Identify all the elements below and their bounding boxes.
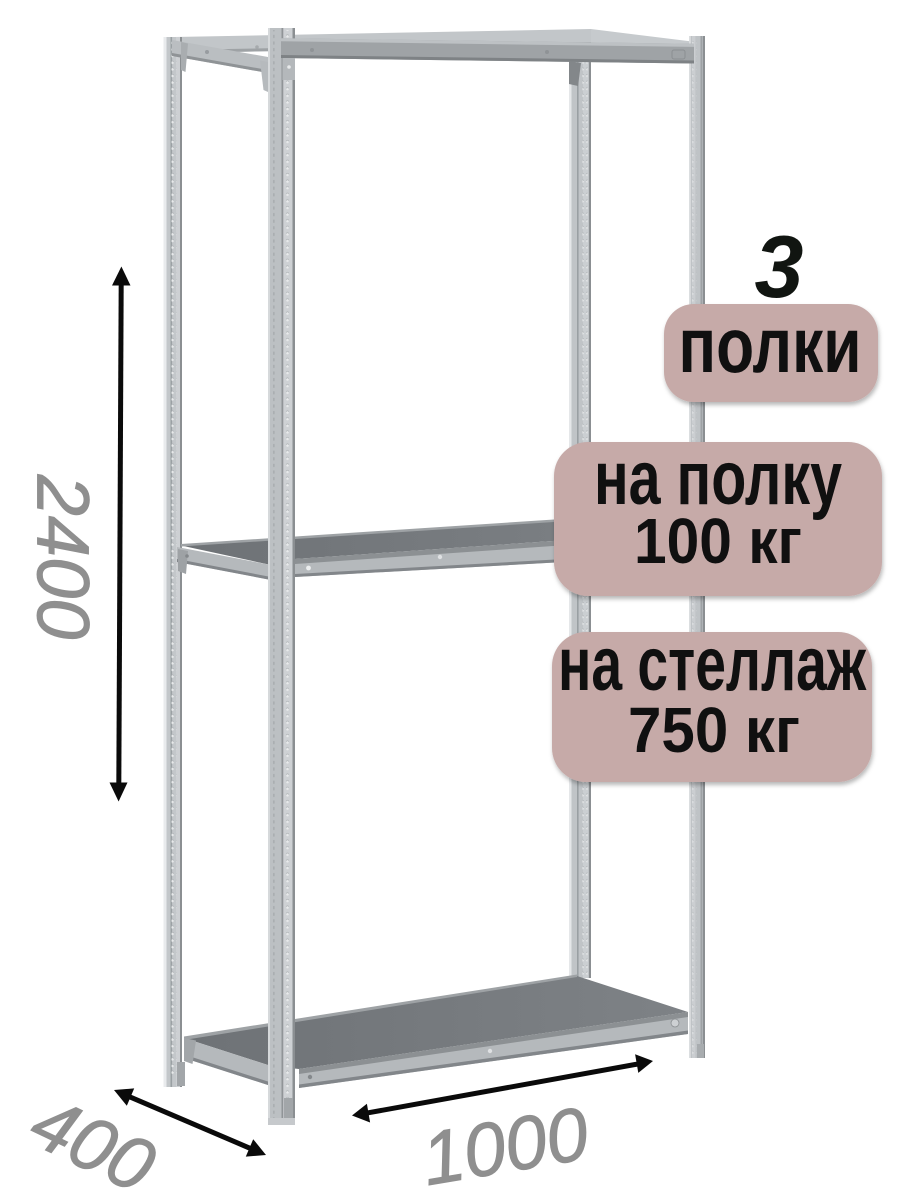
svg-text:2400: 2400 — [22, 474, 105, 640]
svg-text:полки: полки — [679, 301, 862, 389]
svg-text:100 кг: 100 кг — [634, 505, 802, 577]
svg-text:750 кг: 750 кг — [628, 694, 800, 766]
